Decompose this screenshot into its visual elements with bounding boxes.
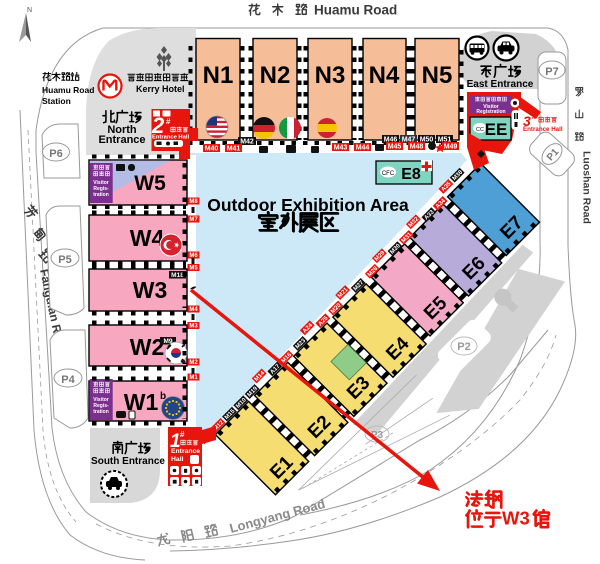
svg-text:E8: E8: [401, 166, 421, 183]
svg-text:N5: N5: [422, 62, 453, 89]
svg-text:W3: W3: [133, 277, 168, 303]
svg-text:M1: M1: [189, 375, 198, 381]
svg-text:M41: M41: [227, 146, 241, 153]
svg-text:W2: W2: [130, 334, 165, 360]
svg-text:East Entrance: East Entrance: [467, 79, 534, 90]
svg-text:Registration: Registration: [476, 109, 505, 115]
svg-text:M7: M7: [189, 217, 198, 223]
svg-text:Entrance Hall: Entrance Hall: [523, 126, 563, 133]
svg-text:M3: M3: [189, 324, 198, 330]
svg-text:#: #: [180, 430, 185, 439]
svg-text:#: #: [166, 117, 171, 126]
svg-text:W5: W5: [134, 172, 166, 195]
svg-text:P5: P5: [58, 254, 71, 266]
svg-text:M45: M45: [388, 144, 402, 151]
svg-text:Outdoor Exhibition Area: Outdoor Exhibition Area: [207, 195, 409, 215]
svg-text:M8: M8: [189, 199, 198, 205]
svg-text:Entrance: Entrance: [98, 134, 145, 146]
svg-text:M49: M49: [444, 144, 458, 151]
svg-text:N1: N1: [203, 62, 234, 89]
svg-text:M4: M4: [189, 307, 198, 313]
svg-text:Huamu Road: Huamu Road: [42, 85, 94, 95]
svg-text:M2: M2: [189, 360, 198, 366]
svg-text:M48: M48: [410, 144, 424, 151]
svg-text:N: N: [27, 7, 32, 14]
svg-text:M42: M42: [240, 139, 254, 146]
svg-text:N3: N3: [315, 62, 346, 89]
svg-text:M18: M18: [171, 272, 184, 279]
svg-text:CC: CC: [476, 127, 484, 133]
svg-text:tration: tration: [93, 192, 109, 198]
svg-text:W4: W4: [130, 225, 165, 251]
svg-text:CFC: CFC: [382, 171, 395, 177]
svg-text:Luoshan Road: Luoshan Road: [581, 151, 593, 224]
svg-text:M43: M43: [334, 145, 348, 152]
svg-text:#: #: [532, 112, 537, 121]
svg-text:Station: Station: [42, 96, 71, 106]
svg-text:Kerry Hotel: Kerry Hotel: [136, 84, 185, 94]
svg-text:M5: M5: [189, 266, 198, 272]
svg-text:W3: W3: [502, 508, 530, 529]
svg-text:tration: tration: [93, 409, 109, 415]
svg-text:N2: N2: [260, 62, 291, 89]
svg-text:EE: EE: [485, 120, 508, 139]
svg-text:P6: P6: [49, 148, 62, 160]
svg-text:P7: P7: [545, 66, 558, 78]
svg-text:Huamu Road: Huamu Road: [314, 3, 397, 18]
svg-text:Entrance Hall: Entrance Hall: [152, 135, 189, 141]
svg-text:M44: M44: [356, 145, 370, 152]
svg-text:P4: P4: [61, 374, 75, 386]
svg-text:P2: P2: [457, 341, 470, 353]
svg-text:Entrance: Entrance: [171, 448, 200, 455]
svg-text:M40: M40: [205, 146, 219, 153]
svg-text:Hall: Hall: [171, 456, 184, 463]
svg-text:South Entrance: South Entrance: [91, 456, 165, 467]
svg-text:N4: N4: [369, 62, 400, 89]
